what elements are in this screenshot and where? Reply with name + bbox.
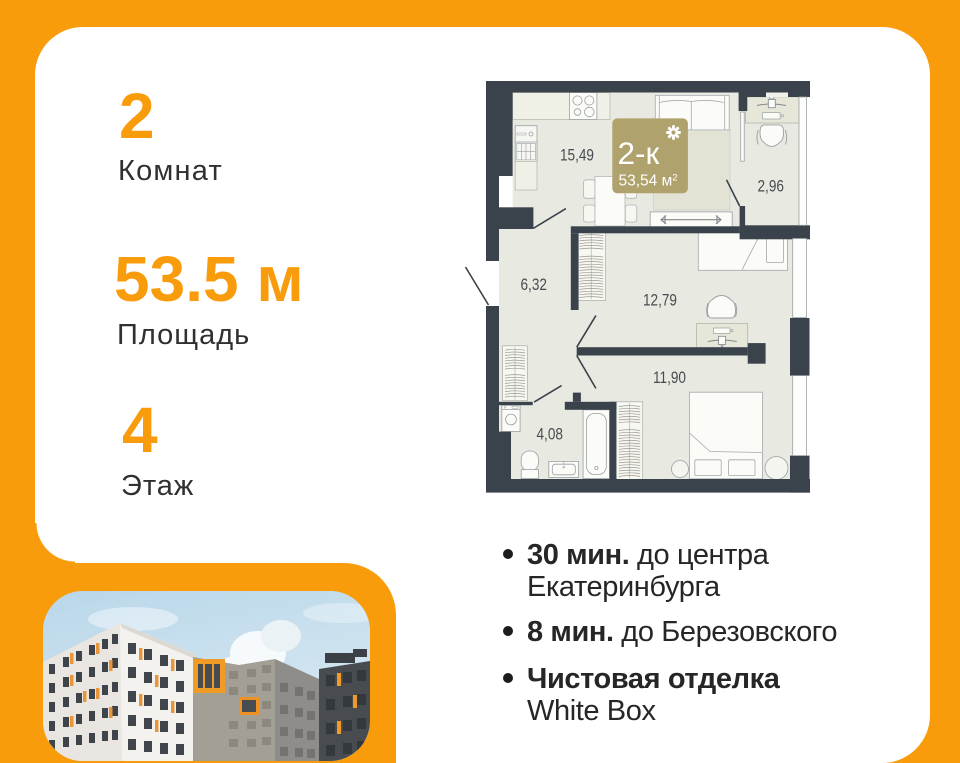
svg-text:2,96: 2,96 [758, 177, 784, 196]
svg-text:4,08: 4,08 [537, 425, 563, 444]
svg-text:15,49: 15,49 [560, 146, 594, 165]
svg-text:53,54 м2: 53,54 м2 [619, 173, 678, 190]
svg-text:11,90: 11,90 [653, 369, 686, 388]
svg-text:6,32: 6,32 [521, 276, 547, 295]
svg-text:2-к: 2-к [618, 135, 660, 171]
svg-text:12,79: 12,79 [643, 291, 677, 310]
